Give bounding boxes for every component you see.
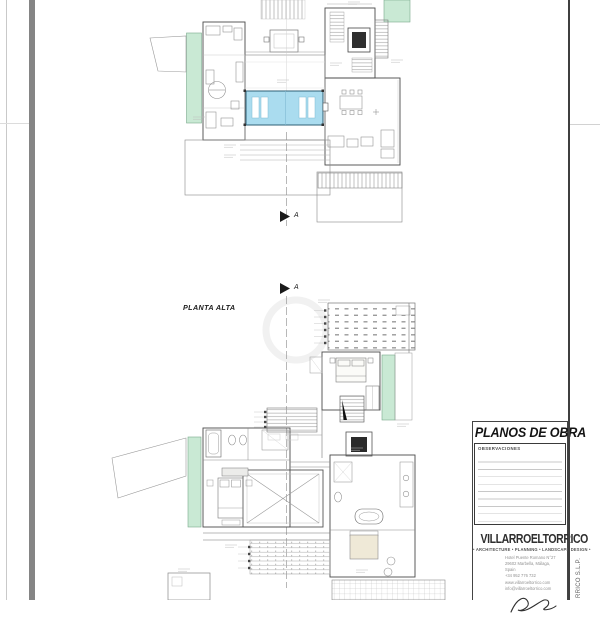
louvre-roof (250, 540, 330, 574)
planter-strip (188, 437, 201, 527)
drawing-sheet: { "plans": { "upper_floor_label": "PLANT… (0, 0, 600, 600)
kitchen-living-furniture (203, 26, 245, 128)
sheet-title: PLANOS DE OBRA (473, 422, 560, 443)
terrace-railing (318, 173, 402, 188)
double-height-void (243, 470, 323, 527)
sheet-border-right (568, 0, 570, 600)
pergola-deck (332, 580, 445, 600)
side-copyright-text: RRICO S.L.P. (576, 544, 582, 598)
bathroom-bedroom-right (330, 462, 415, 576)
observations-ruled-lines (478, 455, 562, 523)
planter-strip (384, 0, 410, 22)
stair-core (327, 4, 388, 72)
firm-tagline: • ARCHITECTURE • PLANNING • LANDSCAPE DE… (473, 547, 567, 552)
exterior-stair (375, 20, 388, 58)
section-marker-a-top-label: A (294, 212, 299, 219)
bedroom-bathroom-left (203, 428, 290, 525)
observations-label: OBSERVACIONES (478, 446, 562, 451)
signature (507, 593, 559, 617)
ground-floor-plan (150, 0, 410, 222)
sheet-edge-band-left (29, 0, 35, 600)
section-arrow-icon (280, 211, 290, 222)
carport-roof (112, 438, 186, 498)
sheet-edge-line-left (6, 0, 7, 600)
section-marker-a-bottom-label: A (294, 284, 299, 291)
louvre-roof (267, 408, 317, 432)
ramp-hatch (261, 0, 305, 19)
planter-strip (187, 33, 202, 123)
swimming-pool (244, 90, 329, 127)
observations-box: OBSERVACIONES (474, 443, 566, 525)
pool-ladder (323, 103, 328, 111)
firm-address: Hotel Puente Romano N°27 29602 Marbella,… (505, 555, 561, 592)
title-block: PLANOS DE OBRA OBSERVACIONES VILLARROELT… (472, 421, 568, 600)
firm-logo: VILLARROELTORRICO (481, 532, 560, 546)
upper-floor-plan (112, 300, 445, 600)
dining-furniture (328, 80, 398, 163)
centering-tick-left (0, 123, 29, 124)
section-arrow-icon (280, 283, 290, 294)
carport-roof (150, 36, 186, 72)
planter-strip (382, 355, 395, 420)
upper-floor-plan-label: PLANTA ALTA (183, 303, 235, 312)
centering-tick-right (570, 124, 600, 125)
